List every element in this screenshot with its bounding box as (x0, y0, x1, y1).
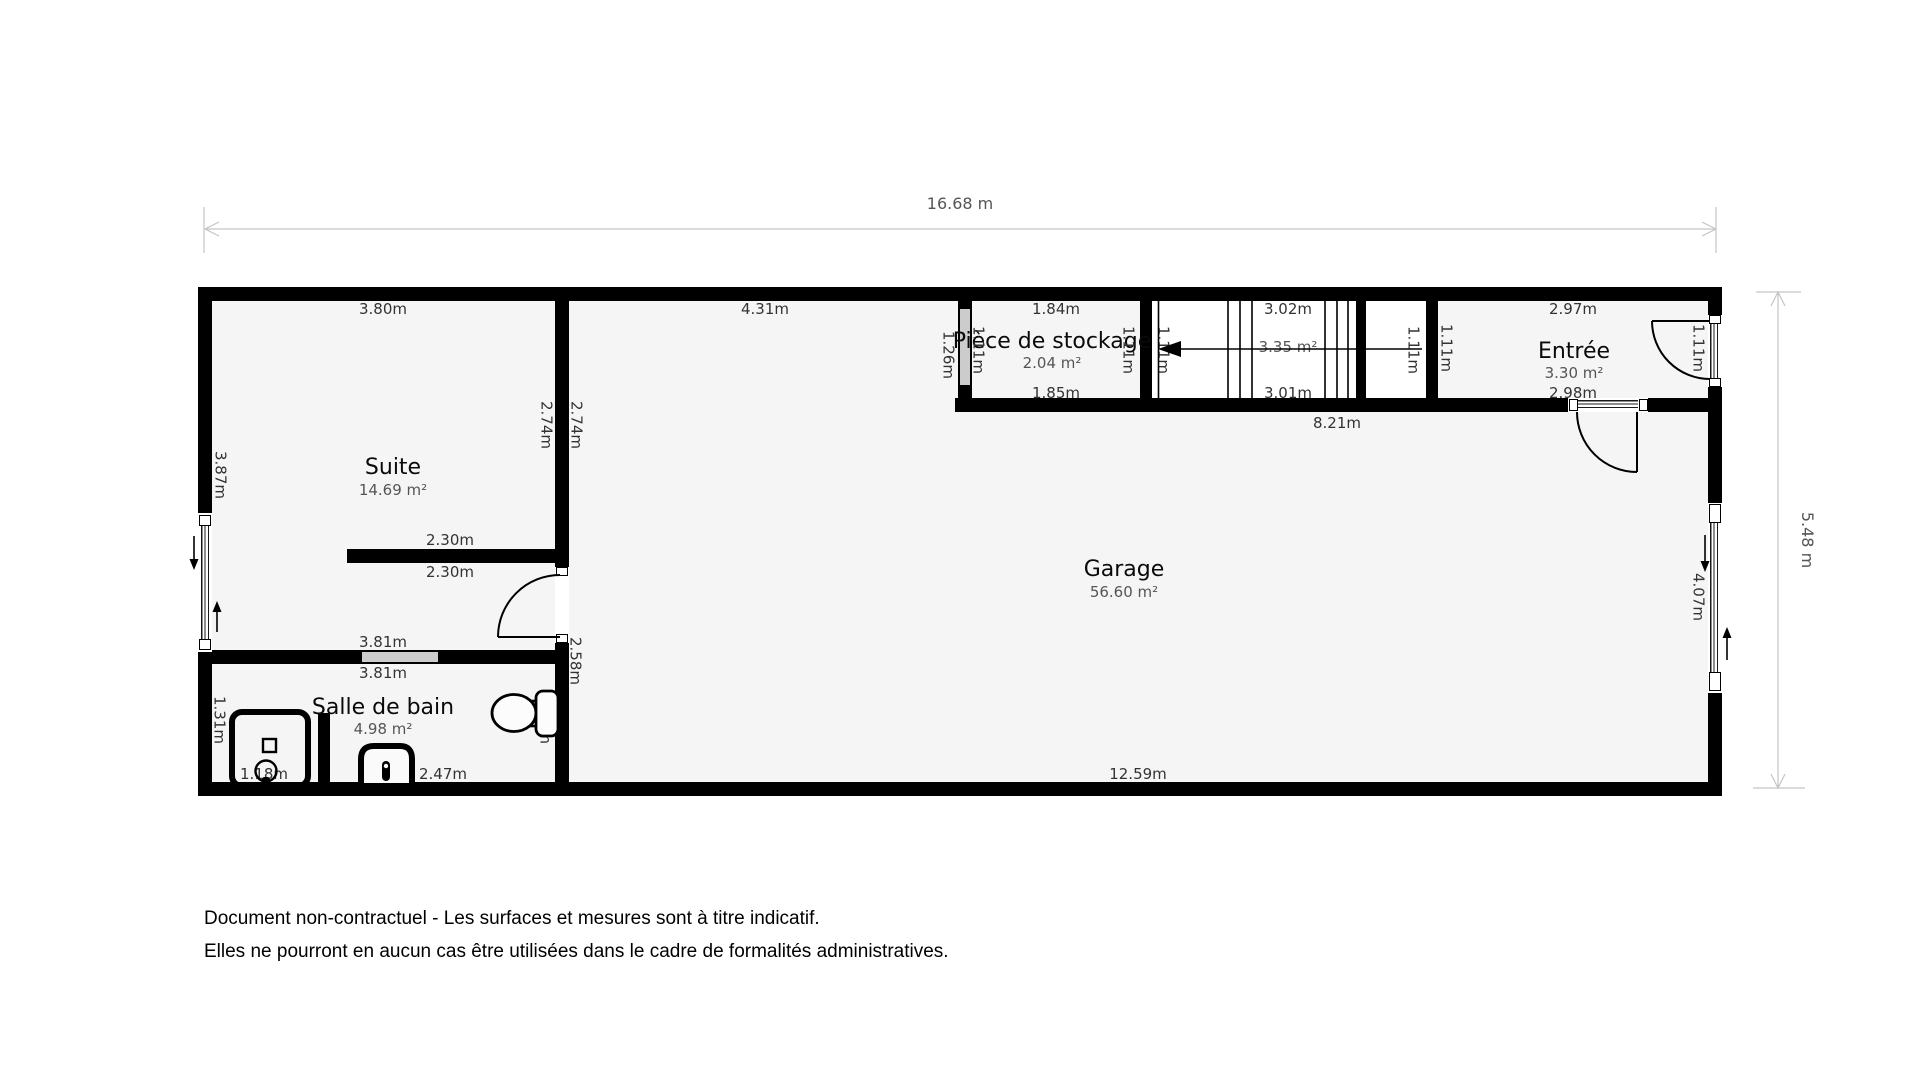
dim-shower-width: 1.18m (240, 766, 288, 783)
room-label-bathroom: Salle de bain (312, 696, 454, 720)
dim-bathroom-right: 1.31m (537, 696, 554, 744)
dim-overall-width: 16.68 m (927, 195, 993, 213)
dim-garage-bottom: 12.59m (1109, 766, 1167, 783)
dim-stairs-top: 3.02m (1264, 301, 1312, 318)
dim-suite-wall-garage-side: 2.74m (568, 401, 585, 449)
wall-suite-garage (555, 301, 569, 782)
room-label-suite: Suite (365, 456, 421, 480)
wall-exterior-bottom (198, 782, 1722, 796)
door-entry-exterior-cap-top (1709, 315, 1721, 324)
dim-garage-right: 4.07m (1690, 573, 1707, 621)
window-bathroom (362, 652, 438, 662)
wall-bathroom-partition (318, 713, 330, 782)
dim-garage-left-lower: 2.58m (567, 637, 584, 685)
dim-entry-right: 1.11m (1690, 324, 1707, 372)
garage-slider-arrow-up-icon (1723, 627, 1732, 660)
area-label-storage: 2.04 m² (1023, 355, 1082, 372)
dim-storage-bottom: 1.85m (1032, 385, 1080, 402)
dim-entry-left: 1.11m (1438, 324, 1455, 372)
dim-stairs-bottom: 3.01m (1264, 385, 1312, 402)
dim-storage-left-wall: 1.26m (940, 331, 957, 379)
door-entry-garage-cap-right (1639, 399, 1648, 411)
dim-entry-bottom: 2.98m (1549, 385, 1597, 402)
area-label-suite: 14.69 m² (359, 482, 427, 499)
disclaimer: Document non-contractuel - Les surfaces … (204, 902, 949, 968)
dim-storage-right: 1.11m (1120, 326, 1137, 374)
sliding-door-garage-cap-bottom (1709, 672, 1721, 691)
disclaimer-line1: Document non-contractuel - Les surfaces … (204, 902, 949, 935)
window-suite-left-cap-bottom (199, 639, 211, 650)
dim-bathroom-left: 1.31m (211, 696, 228, 744)
door-suite-garage-opening (555, 567, 569, 643)
wall-stairs-entry (1426, 301, 1438, 398)
room-label-garage: Garage (1084, 558, 1165, 582)
dim-band-bottom: 8.21m (1313, 415, 1361, 432)
dim-bathroom-top-inner: 3.81m (359, 665, 407, 682)
dim-garage-top: 4.31m (741, 301, 789, 318)
area-label-garage: 56.60 m² (1090, 584, 1158, 601)
dim-stairs-left: 1.11m (1155, 326, 1172, 374)
sliding-door-garage-track (1710, 523, 1719, 672)
wall-suite-stub (347, 549, 555, 563)
dim-suite-stub-bottom: 2.30m (426, 564, 474, 581)
wall-exterior-top (198, 287, 1722, 301)
dim-stairs-right: 1.11m (1405, 326, 1422, 374)
floorplan-canvas: 16.68 m 5.48 m 3.80m 3.87m Suite 14.69 m… (0, 0, 1920, 1080)
dim-entry-top: 2.97m (1549, 301, 1597, 318)
dim-storage-left: 1.11m (970, 326, 987, 374)
sliding-door-garage-cap-top (1709, 504, 1721, 523)
disclaimer-line2: Elles ne pourront en aucun cas être util… (204, 935, 949, 968)
dim-storage-top: 1.84m (1032, 301, 1080, 318)
window-suite-left-track (201, 526, 210, 640)
door-suite-garage-cap-top (556, 567, 568, 576)
door-entry-exterior-cap-bottom (1709, 378, 1721, 387)
dim-overall-height: 5.48 m (1798, 512, 1816, 568)
door-entry-exterior-track (1710, 323, 1719, 379)
dim-suite-wall-suite-side: 2.74m (538, 401, 555, 449)
area-label-bathroom: 4.98 m² (354, 721, 413, 738)
room-label-entry: Entrée (1538, 340, 1610, 364)
window-suite-left-cap-top (199, 515, 211, 526)
dim-suite-stub-top: 2.30m (426, 532, 474, 549)
dim-bathroom-bottom: 2.47m (419, 766, 467, 783)
dim-bathroom-top-outer: 3.81m (359, 634, 407, 651)
dim-suite-top: 3.80m (359, 301, 407, 318)
area-label-entry: 3.30 m² (1545, 365, 1604, 382)
area-label-stairs: 3.35 m² (1259, 339, 1318, 356)
dim-suite-left: 3.87m (212, 451, 229, 499)
